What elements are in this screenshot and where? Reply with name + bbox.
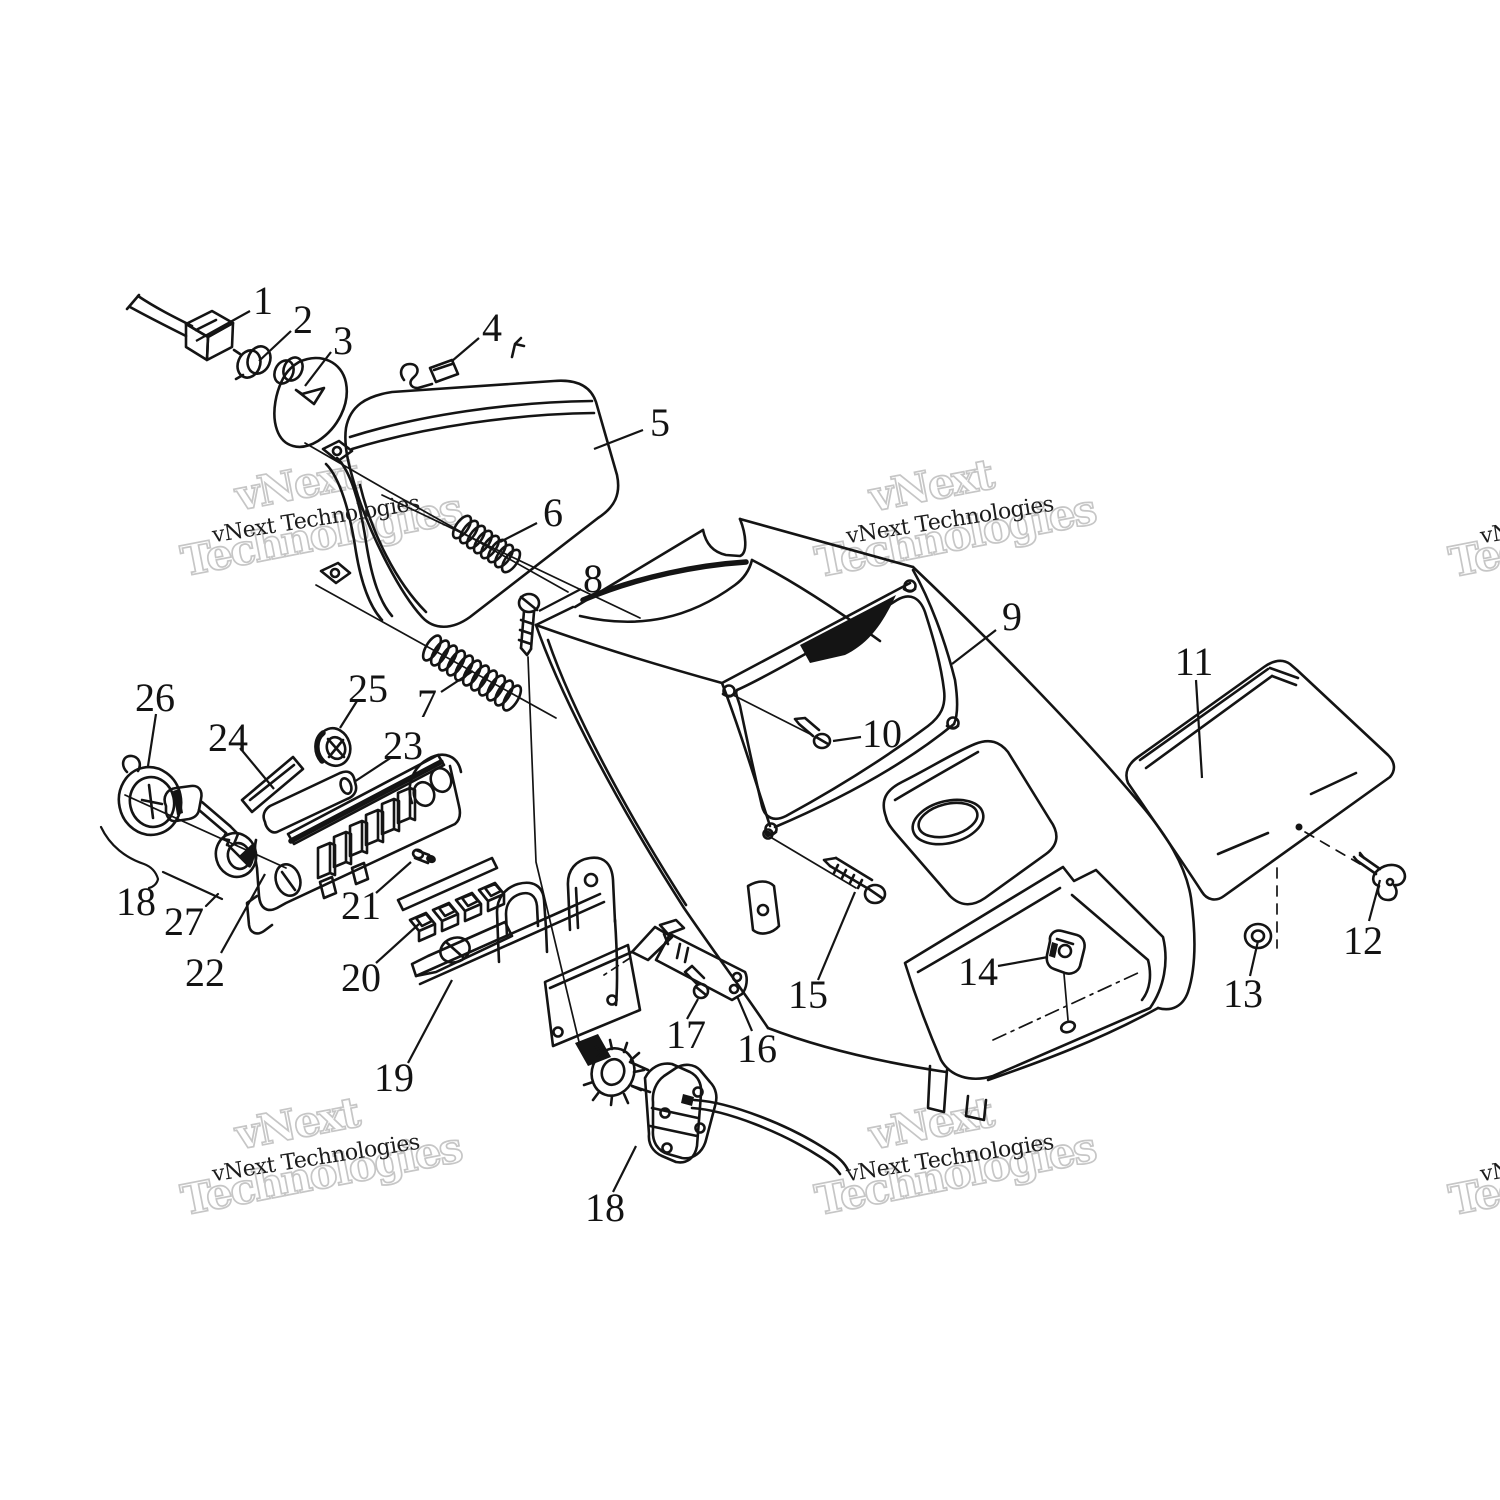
part-label-21: 21 [341,883,381,928]
watermark-small-text: vNext Technologies [1477,1130,1500,1188]
part-label-8: 8 [583,556,603,601]
part-label-25: 25 [348,666,388,711]
part-label-15: 15 [788,972,828,1017]
watermark-outline-4: vNextTechnologies [1435,432,1500,587]
screw-17-art [685,966,708,998]
wing-screw-art [1354,853,1405,900]
rocker-switch [410,883,504,941]
leader-line-7 [441,671,473,692]
wire-clip-art [401,338,524,388]
parts-diagram-page: vNextTechnologiesvNextTechnologiesvNextT… [0,0,1500,1500]
part-label-1: 1 [253,278,273,323]
grommet-art [313,724,355,770]
part-label-19: 19 [374,1055,414,1100]
part-label-23: 23 [383,723,423,768]
leader-line-14 [998,957,1048,966]
part-label-5: 5 [650,400,670,445]
leader-line-5 [594,430,643,449]
part-label-4: 4 [482,305,502,350]
leader-line-15 [818,892,855,980]
part-label-18: 18 [585,1185,625,1230]
part-label-6: 6 [543,490,563,535]
leader-line-21 [376,862,411,893]
part-label-7: 7 [417,681,437,726]
switch-16-art [604,920,747,1000]
leader-line-9 [952,630,996,664]
bracket-19-art [412,858,640,1046]
part-label-24: 24 [208,715,248,760]
watermark-outline-5: vNextTechnologies [1435,1070,1500,1225]
part-label-27: 27 [164,899,204,944]
watermark-text-5: vNext Technologies [1477,1130,1500,1188]
part-label-11: 11 [1175,639,1214,684]
switch-18-art [575,1034,848,1174]
part-label-22: 22 [185,950,225,995]
part-label-18: 18 [116,879,156,924]
leader-line-12 [1369,880,1380,921]
leader-line-19 [408,980,452,1063]
part-label-12: 12 [1343,918,1383,963]
leader-line-4 [452,338,479,361]
leader-line-6 [500,523,537,542]
clip-nut-art [1047,931,1085,974]
leader-line-26 [148,714,156,766]
leader-line-10 [833,737,861,741]
part-label-2: 2 [293,297,313,342]
part-label-20: 20 [341,955,381,1000]
part-label-26: 26 [135,675,175,720]
access-lid-art [1126,661,1393,948]
leader-line-20 [376,924,419,963]
leader-line-22 [221,874,265,953]
part-label-13: 13 [1223,971,1263,1016]
watermark-text-4: vNext Technologies [1477,492,1500,550]
part-label-10: 10 [862,711,902,756]
screw-10-art [795,718,830,748]
console-body-art [536,519,1194,1120]
exploded-parts-diagram: vNextTechnologiesvNextTechnologiesvNextT… [0,0,1500,1500]
screw-15-art [824,858,885,903]
part-label-17: 17 [666,1012,706,1057]
part-label-3: 3 [333,318,353,363]
part-label-16: 16 [737,1026,777,1071]
part-label-14: 14 [958,949,998,994]
part-label-9: 9 [1002,594,1022,639]
watermark-small-text: vNext Technologies [1477,492,1500,550]
roller-pin-art [412,849,437,865]
